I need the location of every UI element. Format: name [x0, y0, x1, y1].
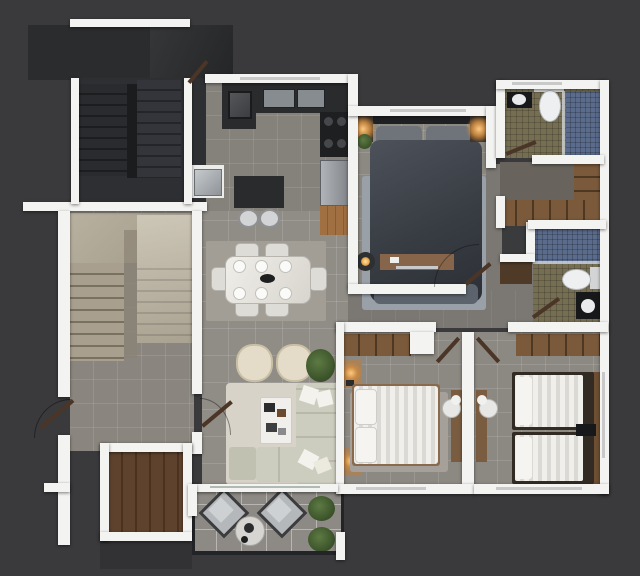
utility-sink-basin: [194, 169, 222, 196]
balcony-rail-bottom: [192, 551, 344, 555]
floor-plan-canvas: [0, 0, 640, 576]
wall-bath2-bottom: [508, 322, 608, 332]
window-kitchen: [240, 77, 320, 80]
entry-mat-dark: [100, 541, 192, 569]
stove-burner-3: [324, 139, 333, 148]
balcony-sliding-glass: [210, 486, 320, 488]
coffee-table-book-1: [264, 403, 275, 412]
wall-foyer-right: [192, 211, 202, 394]
stove-burner-4: [337, 139, 346, 148]
bath2-shower-glass: [533, 261, 602, 264]
terrace-roof-shade: [150, 25, 233, 80]
wall-masterbath-bottom: [532, 155, 604, 164]
bath2-sink-bowl: [581, 299, 595, 313]
wall-utility-bottom: [100, 532, 192, 541]
master-toilet-bowl: [539, 90, 561, 122]
master-bath-sink-bowl: [512, 94, 526, 105]
balcony-rail-left: [192, 514, 195, 554]
bedroom2-pillow-1: [355, 389, 377, 425]
kitchen-sink-tray-1: [263, 89, 295, 108]
dining-chair-east: [309, 267, 327, 291]
linen-cabinet: [502, 226, 526, 254]
bedroom3-bed2-pillow: [516, 437, 532, 479]
wall-utility-left: [100, 443, 109, 541]
wall-entry-stub: [44, 483, 70, 492]
island-stool-2: [259, 209, 280, 228]
bedroom2-wardrobe: [343, 334, 411, 356]
wall-closet-nook: [496, 196, 505, 228]
window-bedroom2: [356, 487, 426, 490]
kitchen-island: [234, 176, 284, 208]
wall-masterbath-left: [496, 80, 505, 158]
armchair-1: [236, 344, 273, 382]
wall-stairwell-left: [71, 78, 79, 204]
wall-balcony-stub-right: [336, 532, 345, 560]
window-bedroom3-side: [602, 372, 605, 458]
coffee-table-book-2: [277, 409, 286, 417]
hall-cabinet: [500, 262, 532, 284]
sofa-chaise: [256, 447, 302, 482]
sofa-ottoman: [229, 447, 256, 480]
bath2-toilet-bowl: [562, 269, 591, 290]
bedroom3-desk-flowers: [477, 395, 487, 405]
stove-burner-2: [337, 117, 346, 126]
balcony-table-decor-2: [241, 536, 248, 543]
kitchen-sink-tray-2: [297, 89, 325, 108]
wall-central-divider: [462, 332, 474, 484]
dining-plate-5: [255, 287, 268, 300]
wall-terrace-top: [70, 19, 190, 27]
bedroom2-pillow-2: [355, 427, 377, 463]
bedroom3-wardrobe: [516, 334, 600, 356]
closet-shelf-right: [574, 164, 600, 204]
balcony-plant-2: [308, 527, 335, 552]
master-shower-glass: [562, 91, 565, 157]
wall-stairwell-right: [184, 78, 192, 204]
utility-room-wood-floor: [109, 450, 185, 534]
wall-balcony-stub-left: [188, 484, 197, 516]
wall-linen-bottom: [500, 254, 535, 262]
coffee-table-book-3: [266, 423, 277, 432]
master-bath-shower-tiles: [566, 91, 600, 157]
dining-plate-2: [255, 260, 268, 273]
living-plant: [306, 349, 335, 382]
dining-plate-4: [233, 287, 246, 300]
bedroom3-tv-unit: [576, 424, 596, 436]
balcony-table-decor-1: [244, 523, 254, 533]
stairwell-flight-left: [79, 84, 127, 176]
pantry-wood-floor: [320, 206, 351, 235]
wall-entry-left: [58, 211, 70, 397]
dining-center-bowl: [260, 274, 275, 283]
bedroom2-desk-flowers: [451, 395, 461, 405]
dining-plate-1: [233, 260, 246, 273]
balcony-plant-1: [308, 496, 335, 521]
window-bedroom3: [496, 487, 582, 490]
bath2-shower-tiles: [533, 228, 602, 264]
marble-stair-stringer: [124, 230, 137, 358]
stove-burner-1: [324, 117, 333, 126]
wall-bedroom2-top: [336, 322, 436, 332]
wall-foyer-right-lower: [192, 432, 202, 454]
stairwell-divider: [127, 84, 137, 178]
marble-lower-flight: [70, 263, 124, 361]
stairwell-flight-right: [137, 80, 181, 178]
coffee-table-book-4: [278, 428, 286, 435]
master-corner-plant: [357, 134, 372, 149]
wall-bedroom2-left: [336, 322, 344, 494]
dining-plate-3: [279, 260, 292, 273]
kitchen-corner-sink: [228, 91, 252, 119]
wall-bedroom2-pillar: [410, 332, 434, 354]
master-bench-decor: [390, 257, 399, 263]
marble-upper-flight-treads: [137, 268, 194, 343]
dining-plate-6: [279, 287, 292, 300]
window-master: [390, 109, 466, 112]
master-bench-tray: [396, 266, 438, 269]
wall-utility-top: [100, 443, 192, 452]
wall-stairwell-bottom: [23, 202, 207, 211]
candle-flame: [361, 257, 370, 266]
window-masterbath: [512, 82, 562, 85]
balcony-rail-right: [341, 492, 344, 534]
bedroom3-bed1-pillow: [516, 377, 532, 425]
wall-master-right: [486, 106, 496, 168]
wall-bath2-top: [528, 220, 606, 229]
island-stool-1: [238, 209, 259, 228]
